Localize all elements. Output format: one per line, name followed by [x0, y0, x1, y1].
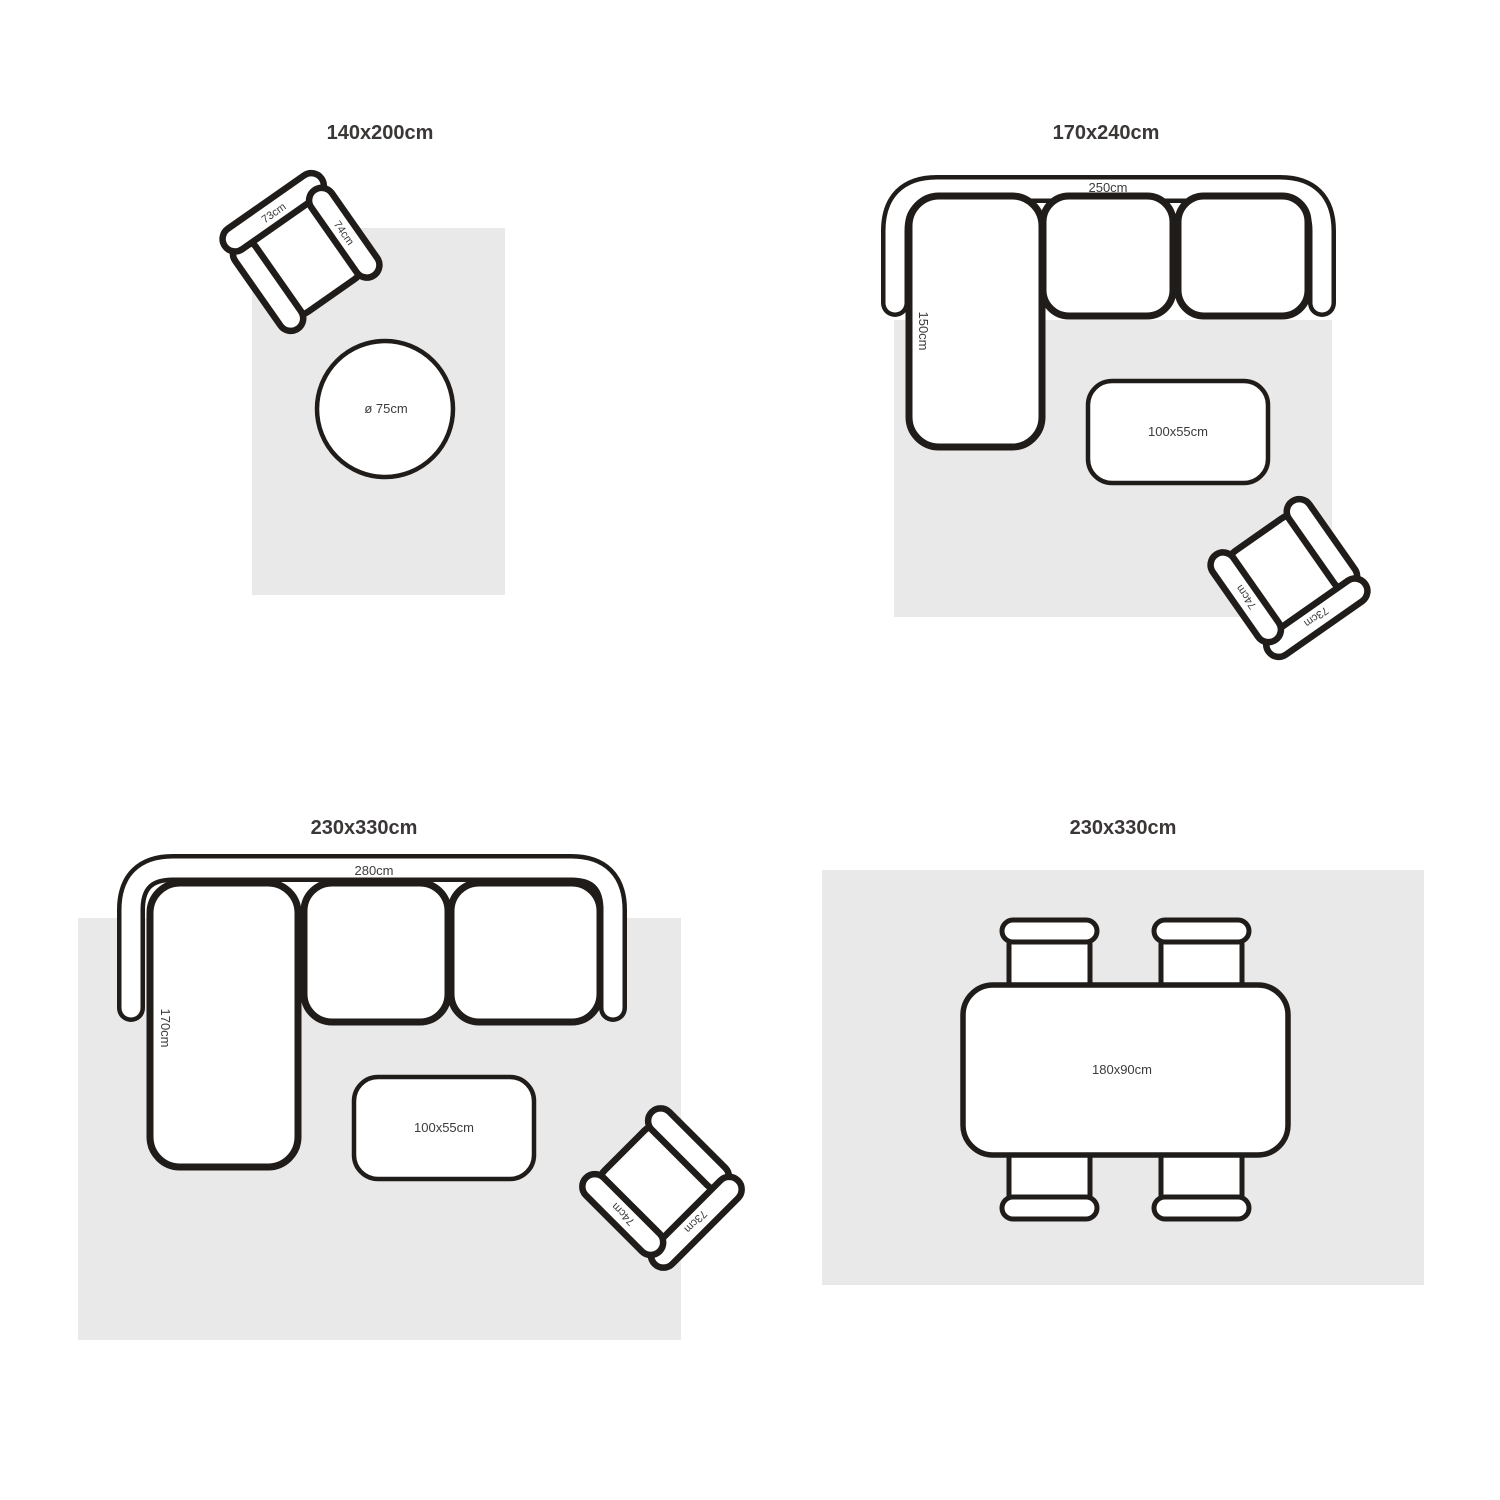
- sofa-cushion: [304, 883, 448, 1022]
- dining-chair: [1002, 920, 1097, 990]
- panel-title: 230x330cm: [1070, 817, 1177, 839]
- sofa-cushion: [1178, 196, 1308, 316]
- panel-230x330-dining: 230x330cm 180x90cm: [822, 817, 1424, 1285]
- sofa-width-label: 250cm: [1088, 180, 1127, 195]
- rug-size-diagram: 140x200cm 73cm 74cm ø 75cm 170x240cm 250…: [0, 0, 1500, 1500]
- sofa-cushion: [451, 883, 600, 1022]
- dining-chair: [1154, 1149, 1249, 1219]
- coffee-table-label: 100x55cm: [1148, 424, 1208, 439]
- panel-140x200: 140x200cm 73cm 74cm ø 75cm: [218, 122, 505, 595]
- chair-back: [1154, 920, 1249, 942]
- rug-size-guide: 140x200cm 73cm 74cm ø 75cm 170x240cm 250…: [0, 0, 1500, 1500]
- dining-table-label: 180x90cm: [1092, 1062, 1152, 1077]
- sofa-width-label: 280cm: [354, 863, 393, 878]
- sofa-depth-label: 170cm: [158, 1008, 173, 1047]
- panel-170x240: 170x240cm 250cm 150cm 100x55cm 73cm 74cm: [894, 122, 1372, 662]
- dining-chair: [1002, 1149, 1097, 1219]
- sofa-depth-label: 150cm: [916, 311, 931, 350]
- panel-230x330-living: 230x330cm 280cm 170cm 100x55cm 73cm 74cm: [78, 817, 747, 1340]
- panel-title: 230x330cm: [311, 817, 418, 839]
- chair-back: [1002, 1197, 1097, 1219]
- chair-back: [1002, 920, 1097, 942]
- panel-title: 140x200cm: [327, 122, 434, 144]
- panel-title: 170x240cm: [1053, 122, 1160, 144]
- coffee-table-label: 100x55cm: [414, 1120, 474, 1135]
- dining-chair: [1154, 920, 1249, 990]
- chair-back: [1154, 1197, 1249, 1219]
- side-table-label: ø 75cm: [364, 401, 407, 416]
- sofa-cushion: [1043, 196, 1173, 316]
